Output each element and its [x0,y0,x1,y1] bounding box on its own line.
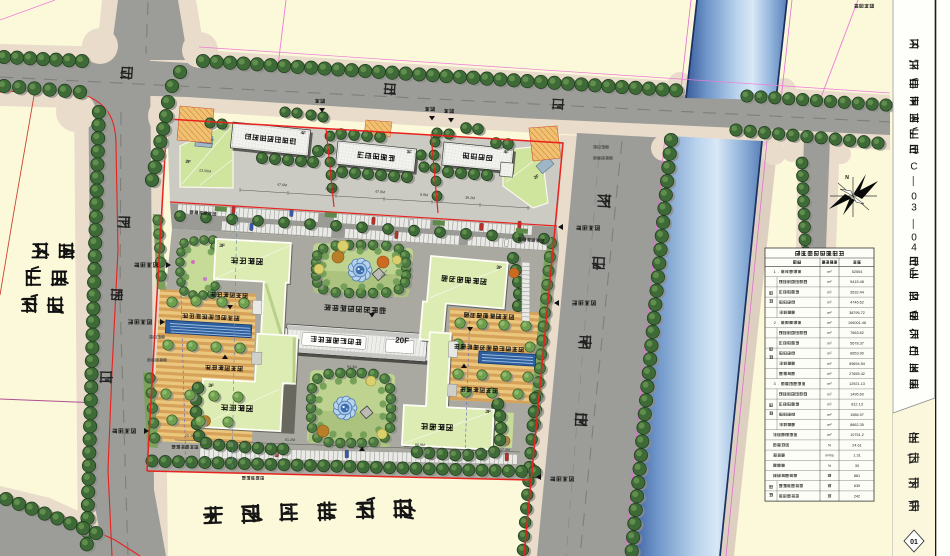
svg-text:3F: 3F [219,243,225,249]
svg-text:52504: 52504 [852,270,863,274]
svg-text:84.3M: 84.3M [347,365,357,370]
svg-text:47.0M: 47.0M [375,190,385,195]
svg-text:812.13: 812.13 [851,403,863,407]
svg-text:31.1M: 31.1M [325,187,335,192]
svg-text:2: 2 [774,320,776,325]
svg-text:881: 881 [854,474,860,478]
svg-text:20F: 20F [395,336,409,346]
svg-text:C: C [910,162,917,173]
svg-text:30: 30 [855,464,859,468]
svg-text:639: 639 [854,484,860,488]
svg-text:25.3M: 25.3M [185,434,195,438]
svg-text:—: — [908,176,919,186]
svg-text:.: . [778,269,779,274]
svg-text:7663.62: 7663.62 [850,331,864,335]
svg-text:m²/ha: m²/ha [825,454,833,458]
svg-text:8862.35: 8862.35 [850,423,864,427]
svg-text:3F: 3F [485,409,491,415]
svg-text:1495.60: 1495.60 [850,392,864,396]
svg-text:242: 242 [854,494,860,498]
svg-text:59694.54: 59694.54 [849,362,865,366]
svg-text:3: 3 [774,381,776,386]
svg-text:2F: 2F [185,159,191,164]
svg-text:1586.97: 1586.97 [850,413,864,417]
svg-text:4746.62: 4746.62 [850,301,864,305]
svg-text:.: . [778,320,779,325]
svg-text:0: 0 [911,192,917,203]
svg-text:.: . [778,381,779,386]
svg-text:66.9M: 66.9M [415,443,425,447]
svg-text:1: 1 [774,269,776,274]
svg-text:106001.46: 106001.46 [848,321,866,325]
svg-text:9.9M: 9.9M [420,193,428,198]
svg-text:N: N [845,175,849,181]
svg-text:5415.48: 5415.48 [850,280,864,284]
svg-text:12921.13: 12921.13 [849,382,865,386]
svg-text:3: 3 [911,203,917,214]
svg-text:—: — [908,219,919,229]
svg-text:17.4M: 17.4M [500,448,510,452]
svg-text:3F: 3F [208,383,214,389]
svg-text:27655.42: 27655.42 [849,372,865,376]
svg-text:5678.37: 5678.37 [850,341,864,345]
svg-text:4F: 4F [300,130,306,136]
svg-text:47.0M: 47.0M [277,183,287,188]
svg-text:01: 01 [910,539,918,546]
svg-text:6853.90: 6853.90 [850,352,864,356]
svg-text:4: 4 [911,243,917,254]
svg-text:39.2M: 39.2M [465,196,475,201]
svg-text:3532.44: 3532.44 [850,290,864,294]
svg-text:3F: 3F [406,149,412,155]
svg-text:3F: 3F [496,265,502,271]
svg-text:38795.72: 38795.72 [849,311,865,315]
svg-text:10751.2: 10751.2 [850,433,864,437]
svg-text:24.61: 24.61 [852,443,862,447]
svg-text:51.2M: 51.2M [285,438,295,442]
svg-text:1.31: 1.31 [853,454,860,458]
